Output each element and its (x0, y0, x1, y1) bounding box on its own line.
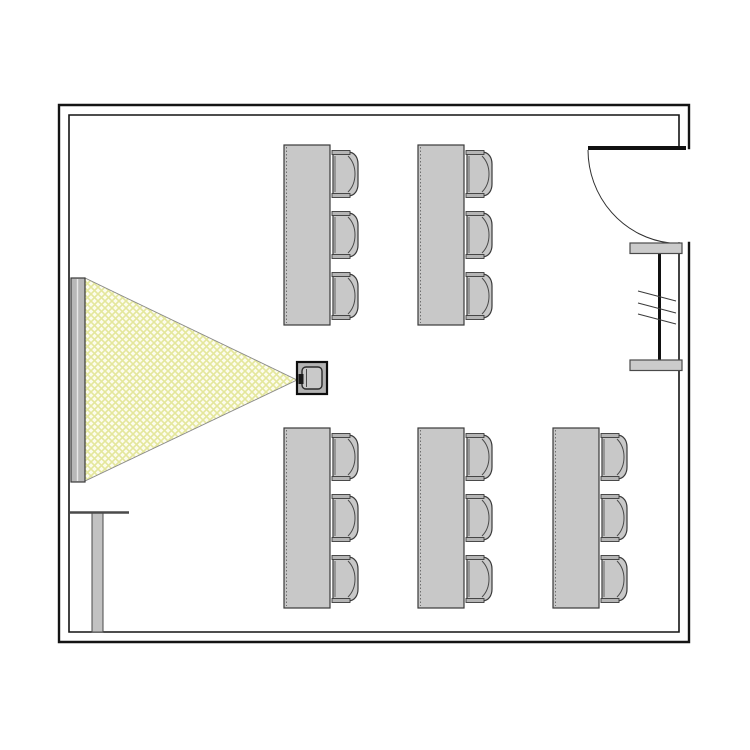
chair-seat (333, 496, 358, 540)
radiator-cap-top (630, 243, 682, 254)
table-top (284, 428, 330, 608)
chair-armrest-bottom (332, 477, 350, 481)
chair-armrest-top (466, 273, 484, 277)
chair-armrest-bottom (601, 599, 619, 603)
chair-armrest-bottom (332, 316, 350, 320)
projection-screen (71, 278, 85, 482)
table-top (553, 428, 599, 608)
table-bottom-right (553, 428, 627, 608)
chair-armrest-top (332, 556, 350, 560)
chair-armrest-bottom (332, 194, 350, 198)
chair-seat (333, 213, 358, 257)
chair-seat (602, 557, 627, 601)
chair (332, 495, 358, 542)
projector (297, 362, 327, 394)
chair-seat (333, 274, 358, 318)
chair (332, 212, 358, 259)
chair-armrest-top (601, 434, 619, 438)
chair (466, 273, 492, 320)
table-top (418, 145, 464, 325)
chair (332, 556, 358, 603)
chair-seat (333, 435, 358, 479)
chair-armrest-bottom (601, 477, 619, 481)
chair-seat (333, 557, 358, 601)
chair-armrest-top (332, 212, 350, 216)
chair (466, 495, 492, 542)
chair-armrest-bottom (332, 599, 350, 603)
chair-armrest-bottom (466, 599, 484, 603)
chair-seat (602, 435, 627, 479)
chair-seat (467, 152, 492, 196)
table-bottom-middle (418, 428, 492, 608)
chair-seat (602, 496, 627, 540)
chair (466, 556, 492, 603)
side-table-leg (92, 513, 103, 632)
chair-seat (467, 557, 492, 601)
table-top-left (284, 145, 358, 325)
chair-armrest-bottom (466, 477, 484, 481)
chair-armrest-top (466, 212, 484, 216)
chair-armrest-bottom (332, 538, 350, 542)
chair-seat (467, 274, 492, 318)
projector-body (302, 367, 322, 389)
chair-armrest-top (601, 556, 619, 560)
chair-seat (467, 435, 492, 479)
table-top (418, 428, 464, 608)
chair (332, 151, 358, 198)
chair (601, 495, 627, 542)
chair (601, 556, 627, 603)
chair-armrest-top (332, 495, 350, 499)
chair-armrest-bottom (466, 194, 484, 198)
projector-lens (299, 374, 304, 384)
chair-seat (467, 496, 492, 540)
chair-armrest-bottom (466, 316, 484, 320)
table-top-middle (418, 145, 492, 325)
chair-armrest-top (601, 495, 619, 499)
chair (466, 434, 492, 481)
chair-armrest-top (466, 434, 484, 438)
chair-armrest-bottom (601, 538, 619, 542)
chair-armrest-top (466, 495, 484, 499)
chair (601, 434, 627, 481)
chair-seat (467, 213, 492, 257)
chair-seat (333, 152, 358, 196)
chair-armrest-top (466, 151, 484, 155)
chair-armrest-top (332, 434, 350, 438)
chair (332, 434, 358, 481)
table-top (284, 145, 330, 325)
chair (332, 273, 358, 320)
chair (466, 212, 492, 259)
chair (466, 151, 492, 198)
chair-armrest-bottom (466, 538, 484, 542)
floorplan-canvas (0, 0, 750, 750)
chair-armrest-top (332, 273, 350, 277)
chair-armrest-top (466, 556, 484, 560)
table-bottom-left (284, 428, 358, 608)
chair-armrest-bottom (466, 255, 484, 259)
radiator-cap-bottom (630, 360, 682, 371)
chair-armrest-top (332, 151, 350, 155)
chair-armrest-bottom (332, 255, 350, 259)
floorplan (0, 0, 750, 750)
